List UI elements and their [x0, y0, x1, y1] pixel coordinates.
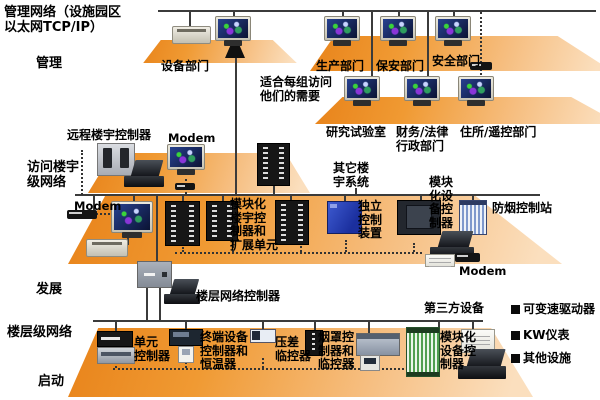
desktop-computer-icon — [324, 16, 360, 46]
modem-icon — [175, 183, 195, 190]
level-label-development: 发展 — [36, 282, 62, 297]
printer-icon — [86, 239, 128, 257]
label-safety-dept: 安全部门 — [432, 55, 480, 69]
label-security-dept: 保安部门 — [376, 60, 424, 74]
desktop-computer-icon — [458, 76, 494, 106]
pressure-monitor-icon — [250, 329, 276, 343]
modular-equipment-controller-icon — [406, 327, 440, 377]
desktop-computer-icon — [167, 144, 205, 175]
leg-line — [146, 284, 148, 321]
label-remote-building-controller: 远程楼宇控制器 — [67, 129, 151, 143]
level-label-management: 管理 — [36, 56, 62, 71]
drop-line-long — [427, 10, 429, 78]
laptop-icon — [164, 279, 200, 304]
thermostat-icon — [178, 346, 194, 363]
controller-rack-icon — [275, 200, 309, 245]
label-modem-top: Modem — [168, 132, 215, 144]
label-modem-left: Modem — [74, 200, 121, 212]
label-smoke-control-station: 防烟控制站 — [492, 202, 552, 216]
floor-bus-line — [93, 320, 483, 322]
modem-icon — [455, 253, 480, 262]
label-production-dept: 生产部门 — [316, 60, 364, 74]
display-device-icon — [360, 355, 380, 371]
printer-icon — [172, 26, 211, 44]
note-group-access: 适合每组访问 他们的需要 — [260, 76, 332, 103]
label-equipment-dept: 设备部门 — [161, 60, 209, 74]
network-architecture-diagram: 管理网络（设施园区 以太网TCP/IP） 管理 设备部门 生产部门 保安部门 安… — [0, 0, 600, 400]
desktop-computer-icon — [215, 16, 251, 46]
leg-line — [159, 284, 161, 321]
desktop-computer-icon — [380, 16, 416, 46]
dashed-line — [81, 150, 83, 195]
controller-box-icon — [356, 333, 400, 356]
device-box-icon — [425, 254, 455, 267]
level-label-startup: 启动 — [38, 374, 64, 389]
label-pressure-monitor: 压差 临控器 — [275, 336, 311, 363]
controller-rack-icon — [165, 201, 200, 246]
independent-control-device-icon — [327, 201, 362, 234]
riser-to-floor-controller — [156, 196, 158, 262]
label-modem-right: Modem — [459, 265, 506, 277]
laptop-icon — [124, 160, 164, 187]
unit-controller-icon — [97, 331, 133, 347]
legend-kw-meter: KW仪表 — [523, 329, 570, 343]
label-research-lab: 研究试验室 — [326, 126, 386, 140]
level-label-floor-network: 楼层级网络 — [7, 325, 72, 340]
management-bus-line — [158, 10, 596, 12]
dashed-trunk — [113, 368, 440, 370]
label-finance-legal: 财务/法律 行政部门 — [396, 126, 448, 153]
dashed-stub — [413, 243, 415, 252]
unit-controller-base-icon — [97, 347, 135, 364]
legend-square-icon — [511, 331, 520, 340]
level-label-access-network: 访问楼宇 级网络 — [27, 160, 79, 190]
label-residence-remote: 住所/遥控部门 — [460, 126, 536, 140]
label-modular-equipment-controller-floor: 模块化 设备控 制器 — [440, 331, 476, 372]
label-floor-network-controller: 楼层网络控制器 — [196, 290, 280, 304]
label-terminal-controller: 终端设备 控制器和 恒温器 — [200, 331, 248, 372]
building-bus-line — [75, 194, 540, 196]
terminal-controller-icon — [169, 329, 203, 346]
legend-square-icon — [511, 305, 520, 314]
desktop-computer-icon — [435, 16, 471, 46]
label-third-party: 第三方设备 — [424, 302, 484, 316]
dashed-stub — [262, 358, 264, 368]
label-hood-controller: 烟罩控 制器和 临控器 — [318, 331, 354, 372]
backbone-line — [235, 57, 237, 195]
dashed-stub — [345, 240, 347, 252]
legend-variable-speed-drive: 可变速驱动器 — [523, 303, 595, 317]
drop-line — [189, 10, 191, 26]
label-modular-equipment-controller: 模块 化设 备控 制器 — [429, 176, 453, 230]
legend-square-icon — [511, 354, 520, 363]
legend-other-facilities: 其他设施 — [523, 352, 571, 366]
stub-line — [368, 320, 370, 333]
dashed-trunk — [175, 252, 422, 254]
smoke-control-station-icon — [459, 200, 487, 235]
desktop-computer-icon — [404, 76, 440, 106]
diagram-title: 管理网络（设施园区 以太网TCP/IP） — [4, 5, 121, 35]
drop-line-long — [371, 10, 373, 78]
desktop-computer-icon — [344, 76, 380, 106]
label-modular-building-controller: 模块化 楼宇控 制器和 扩展单元 — [230, 198, 278, 252]
label-other-building-systems: 其它楼 宇系统 — [333, 162, 369, 189]
label-independent-control: 独立 控制 装置 — [358, 200, 382, 241]
controller-rack-icon — [257, 143, 290, 186]
label-unit-controller: 单元 控制器 — [134, 336, 170, 363]
